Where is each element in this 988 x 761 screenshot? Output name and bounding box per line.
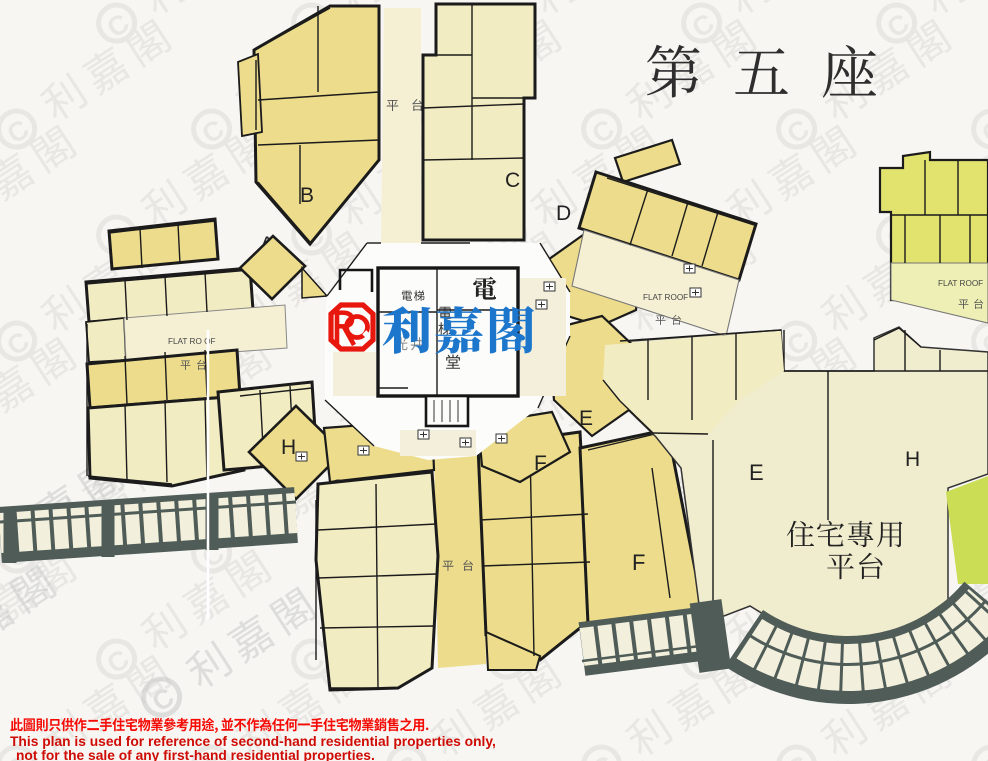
svg-text:E: E	[749, 460, 764, 485]
svg-text:This plan is used for referenc: This plan is used for reference of secon…	[10, 734, 496, 749]
svg-text:FLAT ROOF: FLAT ROOF	[938, 279, 983, 288]
svg-text:F: F	[534, 452, 547, 475]
svg-text:H: H	[905, 448, 920, 471]
svg-text:E: E	[579, 407, 593, 430]
svg-text:F: F	[632, 550, 645, 575]
svg-text:B: B	[300, 184, 314, 207]
svg-text:C: C	[505, 169, 520, 192]
svg-text:FLAT ROOF: FLAT ROOF	[643, 293, 688, 302]
svg-text:not for the sale of any first-: not for the sale of any first-hand resid…	[16, 748, 375, 761]
svg-text:H: H	[281, 436, 296, 459]
svg-text:D: D	[556, 202, 571, 225]
